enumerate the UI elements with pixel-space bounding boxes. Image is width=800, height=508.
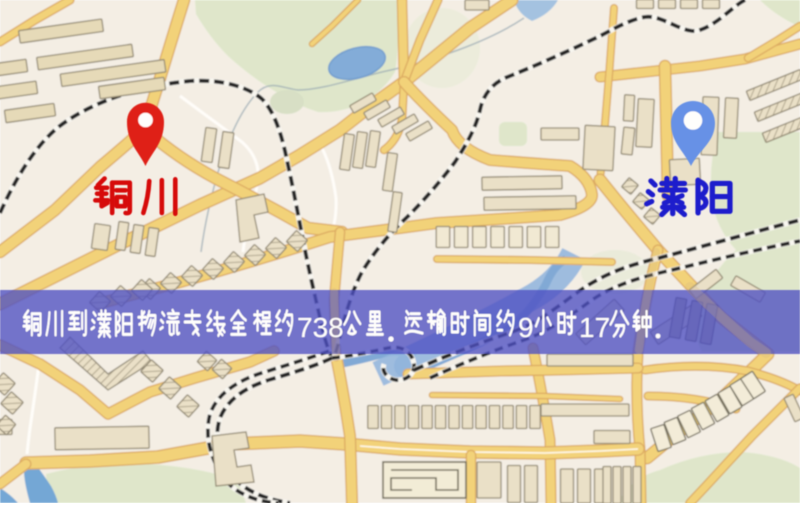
svg-text:9: 9 bbox=[518, 312, 534, 343]
svg-text:738: 738 bbox=[297, 312, 344, 343]
svg-text:17: 17 bbox=[579, 312, 610, 343]
